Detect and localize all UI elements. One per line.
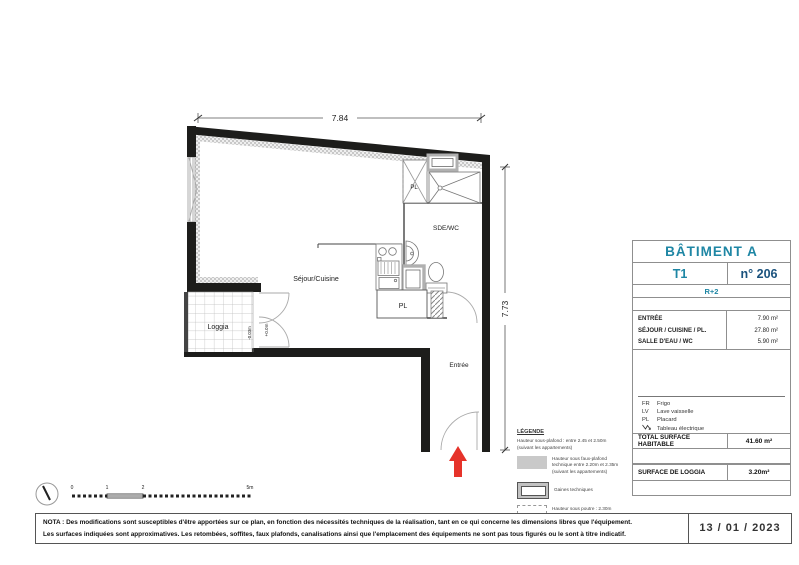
area-label: SALLE D'EAU / WC	[638, 337, 726, 349]
toilet	[426, 263, 447, 294]
room-label-entree: Entrée	[449, 362, 469, 369]
title-block: BÂTIMENT A T1 n° 206 R+2 ENTRÉE SÉJOUR /…	[632, 240, 791, 496]
washbasin	[406, 241, 419, 266]
tableau-electrique-icon	[642, 424, 657, 433]
level-label-loggia: -0.03m	[247, 326, 252, 340]
apartment-type: T1	[633, 263, 728, 284]
apartment-number: n° 206	[728, 263, 790, 284]
abbreviation-row: Tableau électrique	[642, 425, 790, 433]
entrance-arrow	[449, 446, 467, 477]
abbreviation-row: PL Placard	[642, 416, 790, 424]
spacer-row	[633, 350, 790, 396]
gray-fill-swatch	[517, 456, 547, 469]
kitchen-block	[376, 244, 402, 290]
date-box: 13 / 01 / 2023	[688, 513, 792, 544]
abbreviations-list: FR Frigo LV Lave vaisselle PL Placard Ta…	[633, 397, 790, 433]
svg-text:0: 0	[71, 485, 74, 491]
legend: LÉGENDE Hauteur sous-plafond : entre 2.4…	[517, 429, 633, 520]
duct-middle	[402, 266, 424, 292]
room-label-loggia: Loggia	[207, 324, 228, 331]
spacer-row	[633, 298, 790, 311]
bathroom-door	[431, 291, 477, 323]
room-label-sde-wc: SDE/WC	[433, 225, 459, 232]
shower-tray	[429, 172, 480, 203]
svg-text:5m: 5m	[247, 485, 254, 491]
svg-text:1: 1	[106, 485, 109, 491]
svg-text:2: 2	[142, 485, 145, 491]
loggia-door	[259, 293, 289, 347]
scale-bar: 0 1 2 5m	[71, 485, 254, 498]
room-label-pl-top: PL	[410, 185, 418, 191]
type-number-row: T1 n° 206	[633, 263, 790, 285]
floorplan-sheet: 7.84 7.73 Séjour/Cuisine SDE/WC Loggia E…	[0, 0, 799, 565]
loggia-surface-row: SURFACE DE LOGGIA 3.20m²	[633, 464, 790, 481]
entrance-door	[441, 412, 479, 450]
area-value: 7.90 m²	[727, 314, 778, 326]
building-name: BÂTIMENT A	[633, 241, 790, 263]
dim-top-label: 7.84	[332, 113, 349, 123]
nota-line-1: NOTA : Des modifications sont susceptibl…	[43, 517, 681, 529]
nota-line-2: Les surfaces indiquées sont approximativ…	[43, 529, 681, 541]
floor-level: R+2	[633, 285, 790, 298]
duct-top	[428, 155, 457, 170]
abbreviation-row: LV Lave vaisselle	[642, 408, 790, 416]
nota-box: NOTA : Des modifications sont susceptibl…	[35, 513, 689, 544]
dimension-right: 7.73	[499, 164, 511, 453]
duct-swatch	[517, 482, 549, 499]
area-label: SÉJOUR / CUISINE / PL.	[638, 326, 726, 338]
legend-ceiling-note: Hauteur sous-plafond : entre 2.45 et 2.5…	[517, 438, 621, 452]
room-label-sejour-cuisine: Séjour/Cuisine	[293, 276, 339, 283]
spacer-row	[633, 481, 790, 495]
legend-title: LÉGENDE	[517, 429, 633, 435]
area-label: ENTRÉE	[638, 314, 726, 326]
spacer-row	[633, 449, 790, 464]
area-value: 5.90 m²	[727, 337, 778, 349]
area-value: 27.80 m²	[727, 326, 778, 338]
room-label-pl-bottom: PL	[399, 303, 408, 310]
total-surface-row: TOTAL SURFACE HABITABLE 41.60 m²	[633, 433, 790, 449]
level-label-interior: +0.0m	[264, 323, 269, 336]
north-symbol	[36, 483, 58, 505]
dimension-top: 7.84	[194, 111, 485, 123]
legend-item-false-ceiling: Hauteur sous faux-plafond technique entr…	[517, 456, 633, 476]
closet-top	[403, 160, 427, 203]
abbreviation-row: FR Frigo	[642, 400, 790, 408]
legend-item-ducts: Gaines techniques	[517, 482, 633, 499]
room-areas-table: ENTRÉE SÉJOUR / CUISINE / PL. SALLE D'EA…	[633, 311, 790, 350]
dim-right-label: 7.73	[500, 300, 510, 317]
